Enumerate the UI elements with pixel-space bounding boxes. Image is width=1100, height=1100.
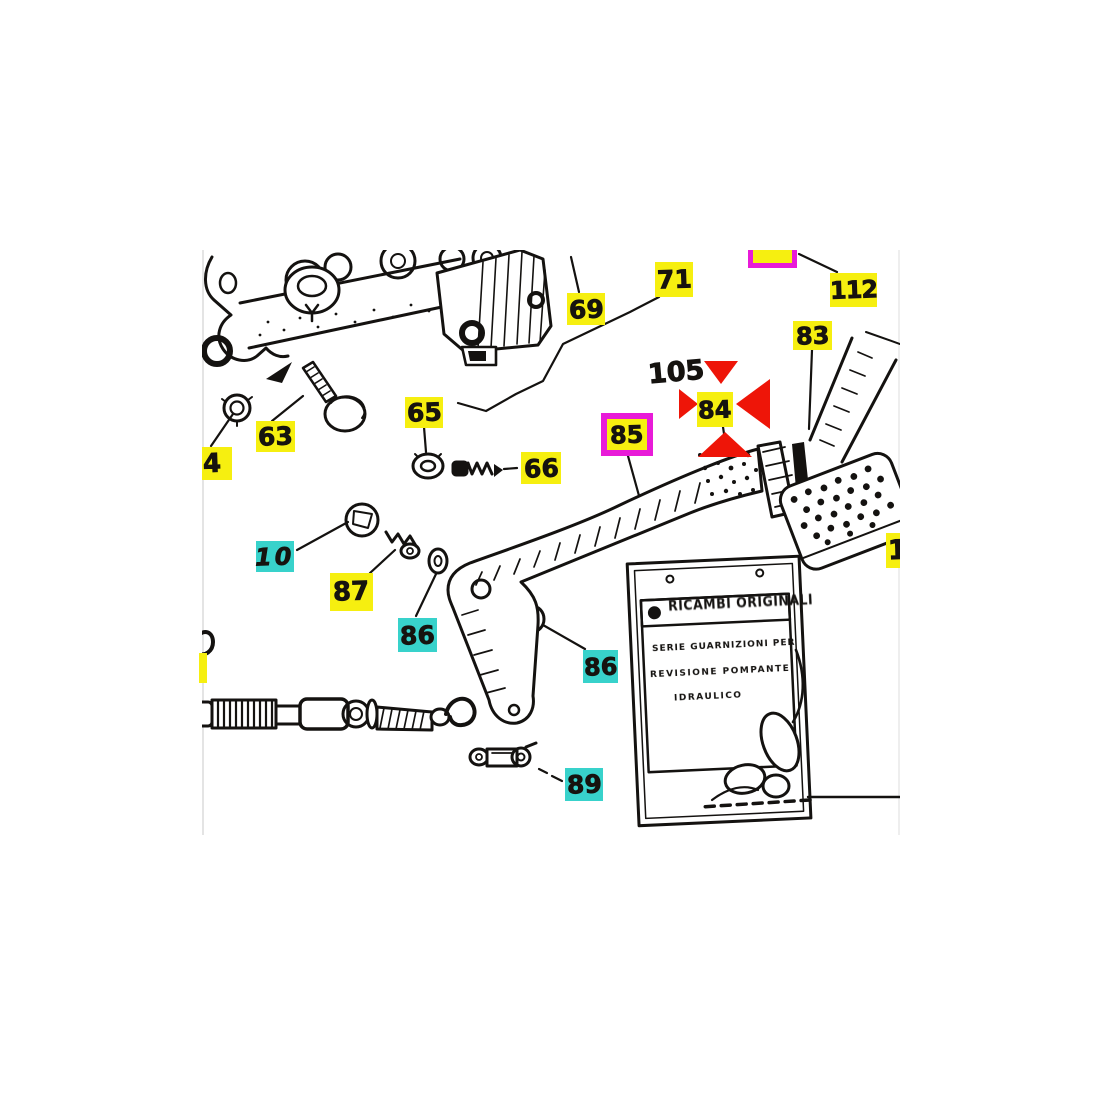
callout-69[interactable]: 69 (567, 293, 605, 325)
callout-partial-left (199, 653, 207, 683)
washer-86a (429, 549, 447, 573)
pedal-shaft (810, 332, 900, 462)
callout-65[interactable]: 65 (405, 397, 443, 428)
callout-86-washer[interactable]: 86 (398, 618, 437, 652)
screw-66 (452, 461, 503, 477)
callout-89[interactable]: 89 (565, 768, 603, 801)
diagram-artwork (0, 0, 1100, 1100)
callout-10[interactable]: 10 (256, 541, 294, 572)
highlight-arrow-left (679, 389, 698, 419)
callout-85[interactable]: 85 (601, 413, 653, 456)
cup-washer-10 (346, 504, 378, 536)
callout-4[interactable]: 4 (202, 447, 232, 480)
callout-63[interactable]: 63 (256, 421, 295, 452)
callout-86-washer-2[interactable]: 86 (583, 650, 618, 683)
callout-112[interactable]: 112 (830, 273, 877, 307)
callout-84-selected[interactable]: 84 (697, 392, 733, 427)
callout-partial-top (748, 250, 797, 268)
callout-71[interactable]: 71 (655, 262, 693, 297)
callout-partial-1[interactable]: 1 (886, 533, 900, 568)
annotation-105: 105 (646, 356, 706, 388)
highlight-arrow-top (704, 361, 738, 384)
callout-83[interactable]: 83 (793, 321, 832, 350)
clevis-89 (470, 743, 536, 766)
callout-66[interactable]: 66 (521, 452, 561, 484)
highlight-arrow-right (736, 379, 770, 429)
parts-diagram-page: 4 63 65 66 69 71 112 83 84 85 86 86 87 1… (0, 0, 1100, 1100)
highlight-arrow-bottom (698, 432, 752, 457)
callout-87[interactable]: 87 (330, 573, 373, 611)
nut-65 (413, 454, 443, 478)
